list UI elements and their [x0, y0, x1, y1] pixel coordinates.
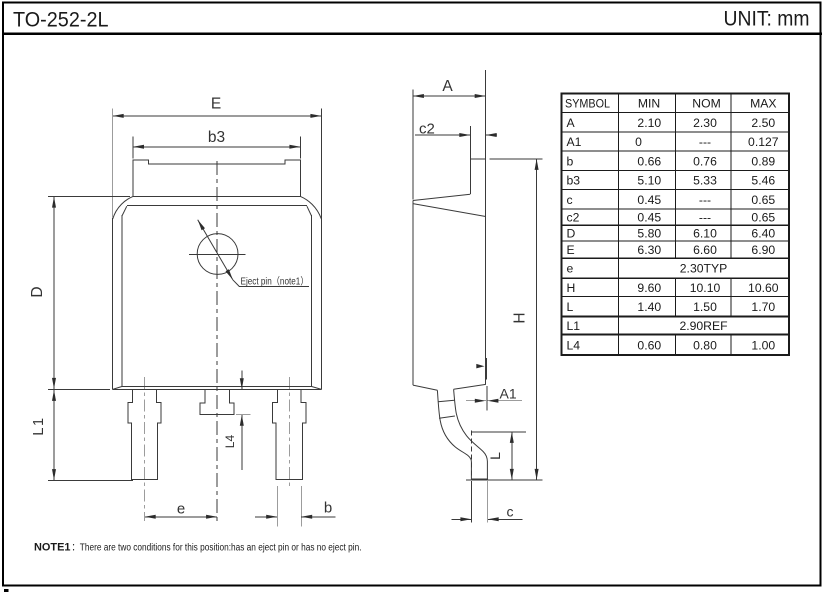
svg-text:6.60: 6.60	[693, 243, 717, 257]
svg-text:c2: c2	[419, 121, 435, 138]
svg-text:SYMBOL: SYMBOL	[565, 96, 610, 110]
svg-text:0.76: 0.76	[693, 154, 717, 168]
svg-text:A1: A1	[500, 386, 517, 402]
svg-text:NOTE1: NOTE1	[34, 542, 71, 554]
svg-text:2.90REF: 2.90REF	[679, 319, 727, 333]
svg-text:：There are two conditions for: ：There are two conditions for this posit…	[72, 543, 362, 554]
svg-text:UNIT: mm: UNIT: mm	[724, 7, 810, 30]
svg-text:5.33: 5.33	[693, 174, 717, 188]
svg-text:0.127: 0.127	[748, 135, 779, 149]
svg-text:2.30: 2.30	[693, 116, 717, 130]
svg-text:0.45: 0.45	[637, 193, 661, 207]
svg-text:L1: L1	[567, 319, 581, 333]
svg-text:6.10: 6.10	[693, 227, 717, 241]
svg-text:---: ---	[699, 135, 711, 149]
svg-text:5.10: 5.10	[637, 174, 661, 188]
svg-text:A: A	[442, 78, 453, 95]
svg-text:2.50: 2.50	[751, 116, 775, 130]
svg-text:c: c	[567, 193, 573, 207]
svg-text:9.60: 9.60	[637, 281, 661, 295]
svg-text:0.89: 0.89	[751, 154, 775, 168]
svg-text:L4: L4	[223, 435, 237, 449]
svg-text:b: b	[324, 500, 332, 517]
svg-text:0.66: 0.66	[637, 154, 661, 168]
svg-text:L: L	[487, 452, 503, 460]
svg-text:b3: b3	[567, 174, 581, 188]
svg-text:0.45: 0.45	[637, 211, 661, 225]
svg-text:A: A	[567, 116, 576, 130]
svg-text:5.46: 5.46	[751, 174, 775, 188]
svg-text:0.65: 0.65	[751, 211, 775, 225]
svg-text:L: L	[567, 300, 574, 314]
svg-text:b3: b3	[208, 129, 225, 146]
svg-text:D: D	[29, 286, 46, 297]
svg-text:6.40: 6.40	[751, 227, 775, 241]
svg-text:1.50: 1.50	[693, 300, 717, 314]
svg-text:e: e	[177, 501, 185, 518]
svg-text:0.60: 0.60	[637, 338, 661, 352]
svg-text:c2: c2	[567, 211, 580, 225]
svg-text:0: 0	[635, 135, 642, 149]
svg-text:e: e	[567, 262, 574, 276]
svg-text:c: c	[507, 504, 514, 520]
svg-text:1.70: 1.70	[751, 300, 775, 314]
svg-text:A1: A1	[567, 135, 582, 149]
svg-text:6.30: 6.30	[637, 243, 661, 257]
svg-text:L4: L4	[567, 338, 581, 352]
svg-text:MIN: MIN	[638, 96, 660, 110]
svg-text:b: b	[567, 154, 574, 168]
svg-text:MAX: MAX	[750, 96, 776, 110]
svg-text:---: ---	[699, 211, 711, 225]
svg-text:H: H	[512, 312, 529, 323]
svg-text:2.30TYP: 2.30TYP	[680, 262, 727, 276]
svg-text:E: E	[211, 96, 221, 113]
svg-text:1.00: 1.00	[751, 338, 775, 352]
svg-text:2.10: 2.10	[637, 116, 661, 130]
svg-text:Eject pin（note1）: Eject pin（note1）	[241, 276, 309, 288]
svg-text:L1: L1	[31, 416, 47, 435]
svg-text:1.40: 1.40	[637, 300, 661, 314]
svg-text:6.90: 6.90	[751, 243, 775, 257]
svg-text:0.80: 0.80	[693, 338, 717, 352]
svg-text:0.65: 0.65	[751, 193, 775, 207]
svg-text:10.10: 10.10	[690, 281, 721, 295]
svg-text:10.60: 10.60	[748, 281, 779, 295]
svg-text:E: E	[567, 243, 575, 257]
svg-text:---: ---	[699, 193, 711, 207]
svg-text:H: H	[567, 281, 576, 295]
svg-text:NOM: NOM	[692, 96, 720, 110]
svg-text:TO-252-2L: TO-252-2L	[13, 9, 109, 32]
svg-text:5.80: 5.80	[637, 227, 661, 241]
svg-text:D: D	[567, 227, 576, 241]
